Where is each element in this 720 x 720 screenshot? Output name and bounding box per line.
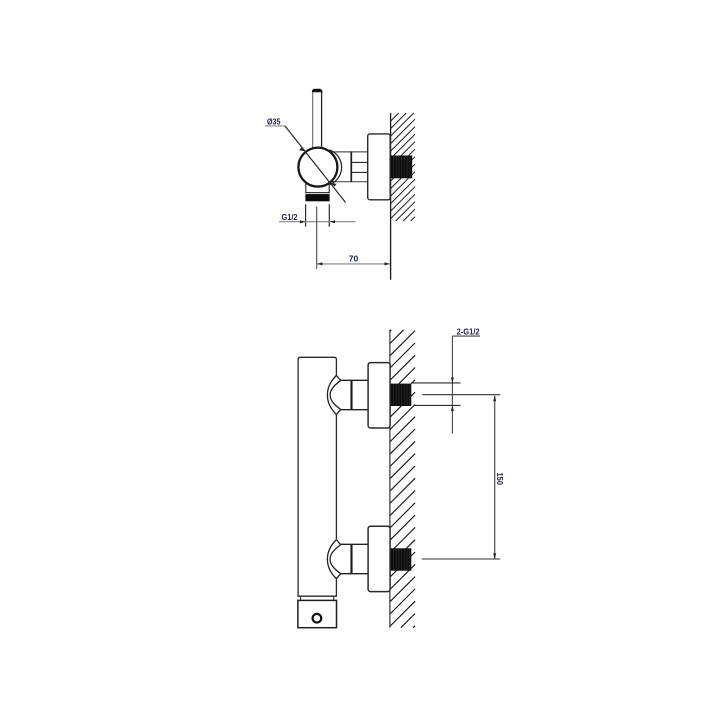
svg-text:150: 150 — [495, 473, 505, 486]
svg-text:2-G1/2: 2-G1/2 — [457, 327, 480, 337]
svg-text:70: 70 — [349, 253, 359, 263]
svg-text:Ø35: Ø35 — [267, 117, 281, 127]
svg-text:G1/2: G1/2 — [282, 212, 298, 222]
